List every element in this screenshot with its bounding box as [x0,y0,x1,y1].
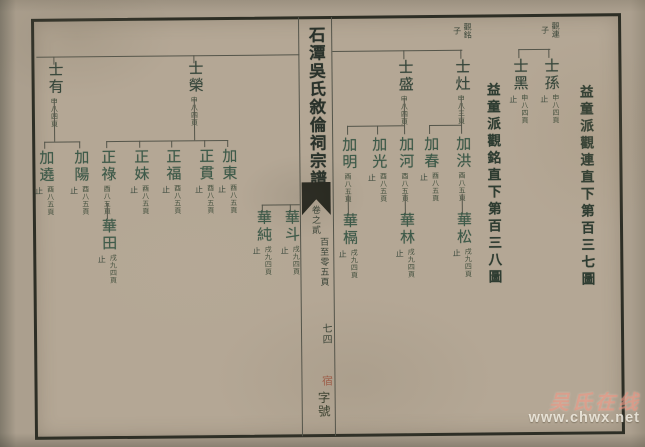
parent-label-guanming: 觀銘 子 [452,23,474,49]
person-entry: 加河 酉八五頁 [395,136,414,202]
branch-drop-line [106,141,107,148]
parent-name: 觀連 [550,22,561,38]
stop-mark: 止 [69,186,80,194]
branch-drop-line [347,126,348,135]
branch-drop-line [404,125,405,134]
stop-mark: 止 [129,186,140,194]
gen1-left-bracket-line [36,54,299,58]
page-ref: 酉八五頁 [378,172,388,202]
person-entry: 華林 止戌九四頁 [396,212,415,278]
parent-stem-line [404,98,406,125]
gen2-bracket-line [347,125,405,127]
gen3-bracket-line [262,204,300,206]
parent-stem-line [107,203,109,219]
page-ref: 酉八五頁 [46,186,56,216]
person-name: 加河 [395,136,416,170]
branch-drop-line [79,141,80,148]
stop-mark: 止 [194,185,205,193]
person-name: 加洪 [452,136,473,170]
branch-drop-line [227,140,228,147]
branch-drop-line [377,126,378,135]
branch-drop-line [548,49,549,58]
stop-mark: 止 [418,173,429,181]
person-name: 正妹 [130,149,151,183]
parent-name: 觀銘 [462,23,473,39]
stop-mark: 止 [161,185,172,193]
person-name: 華林 [396,212,417,246]
stop-mark: 止 [451,249,462,257]
person-name: 華松 [453,212,474,246]
branch-drop-line [461,125,462,134]
person-entry: 正妹 止酉八五頁 [130,149,149,215]
branch-drop-line [139,141,140,148]
branch-drop-line [460,50,461,59]
branch-drop-line [44,142,45,149]
genealogy-page-scan: 觀銘 子 觀連 子 士有 申八四頁 士榮 申八四頁 士盛 申八四頁 士灶 申八三… [0,0,645,447]
page-border-frame: 觀銘 子 觀連 子 士有 申八四頁 士榮 申八四頁 士盛 申八四頁 士灶 申八三… [31,13,625,440]
zihao-label: 字號 [314,391,333,418]
page-ref: 戌九四頁 [108,254,118,284]
page-ref: 酉八五頁 [141,185,151,215]
page-ref: 戌九四頁 [463,248,473,278]
person-entry: 加洪 酉八五頁 [452,136,471,202]
person-entry: 加陽 止酉八五頁 [70,149,89,215]
sheet-number: 七四 [318,323,333,345]
stop-mark: 止 [251,247,262,255]
branch-header-guanlian: 益童派觀連直下第百三七圖 [578,84,597,288]
person-entry: 華松 止戌九四頁 [453,212,472,278]
person-name: 正貫 [195,148,216,182]
stop-mark: 止 [366,174,377,182]
person-entry: 正福 止酉八五頁 [162,148,181,214]
person-name: 華田 [98,218,119,252]
page-ref: 酉八五頁 [229,184,239,214]
page-ref: 酉八五頁 [173,184,183,214]
page-ref: 酉八五頁 [206,184,216,214]
person-name: 士榮 [184,60,205,94]
page-ref: 戌九四頁 [263,246,273,276]
person-name: 華槅 [339,213,360,247]
stop-mark: 止 [34,187,45,195]
stop-mark: 止 [508,95,519,103]
page-range-label: 百至零五頁 [318,237,331,287]
center-fold-column: 石潭吳氏敘倫祠宗譜 卷之貳 百至零五頁 七四 宿 字號 [298,17,336,436]
branch-drop-line [518,49,519,58]
stop-mark: 止 [279,246,290,254]
red-stamp-character: 宿 [318,375,334,386]
person-name: 加東 [218,148,239,182]
gen1-guanlian-bracket-line [518,49,550,51]
stop-mark: 止 [539,95,550,103]
page-ref: 申八四頁 [551,94,561,124]
person-name: 士有 [44,62,65,96]
person-entry: 士黑 止申八四頁 [509,58,528,124]
person-name: 加光 [368,136,389,170]
son-suffix: 子 [541,25,549,36]
volume-label: 卷之貳 [310,205,323,235]
person-entry: 加春 止酉八五頁 [420,136,439,202]
gen1-right-bracket-line [332,50,462,53]
stop-mark: 止 [96,255,107,263]
person-entry: 正貫 止酉八五頁 [195,148,214,214]
person-name: 士盛 [394,59,415,93]
page-ref: 申八四頁 [520,94,530,124]
person-name: 加明 [338,137,359,171]
person-entry: 加遶 止酉八五頁 [35,150,54,216]
gen2-bracket-line [429,125,462,127]
parent-label-guanlian: 觀連 子 [540,22,562,48]
page-ref: 戌九四頁 [349,249,359,279]
page-ref: 戌九四頁 [406,248,416,278]
person-name: 華純 [253,210,274,244]
page-ref: 酉八五頁 [430,172,440,202]
branch-drop-line [429,125,430,134]
person-name: 正福 [162,148,183,182]
branch-header-guanming: 益童派觀銘直下第百三八圖 [485,82,504,286]
person-name: 士孫 [540,58,561,92]
book-title: 石潭吳氏敘倫祠宗譜 [303,26,329,188]
gen2-bracket-line [106,140,228,143]
stop-mark: 止 [337,250,348,258]
stop-mark: 止 [394,249,405,257]
branch-drop-line [204,140,205,147]
person-entry: 加東 止酉八五頁 [218,148,237,214]
person-entry: 華純 止戌九四頁 [253,210,272,276]
person-entry: 華斗 止戌九四頁 [281,209,300,275]
gen2-bracket-line [44,141,80,143]
stop-mark: 止 [217,185,228,193]
person-name: 士黑 [509,58,530,92]
branch-drop-line [171,140,172,147]
son-suffix: 子 [453,26,461,37]
person-name: 加遶 [35,150,56,184]
person-name: 加春 [420,136,441,170]
parent-stem-line [461,98,463,125]
watermark-site-url: www.chwx.net [529,410,640,426]
person-entry: 華田 止戌九四頁 [98,218,117,284]
person-entry: 加明 酉八五頁 [338,137,357,203]
person-entry: 士孫 止申八四頁 [540,58,559,124]
branch-drop-line [403,50,404,59]
page-ref: 酉八五頁 [81,185,91,215]
person-entry: 華槅 止戌九四頁 [339,213,358,279]
person-name: 正祿 [97,149,118,183]
person-name: 加陽 [70,149,91,183]
person-entry: 加光 止酉八五頁 [368,136,387,202]
person-name: 士灶 [451,59,472,93]
